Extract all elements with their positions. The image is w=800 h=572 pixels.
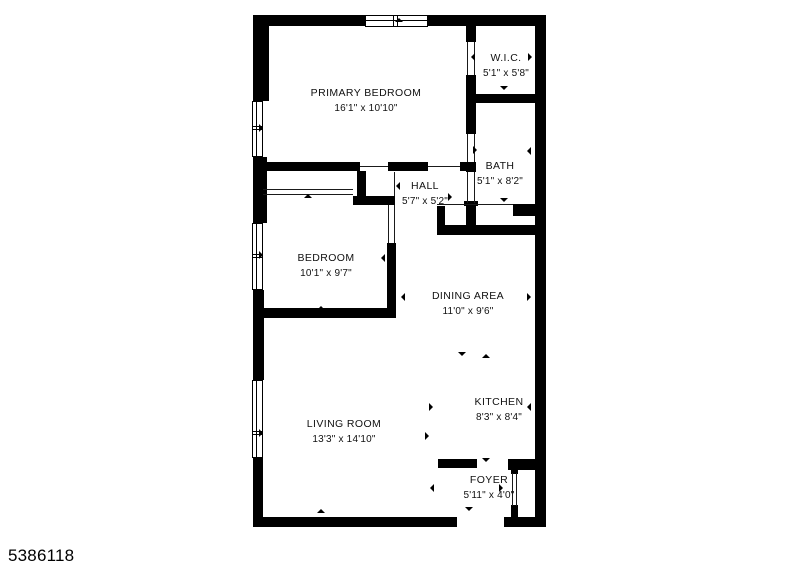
wall — [437, 225, 546, 235]
dimension-tick-marker — [527, 147, 531, 155]
room-label-living-room: LIVING ROOM13'3" x 14'10" — [307, 416, 381, 448]
dimension-tick-marker — [458, 352, 466, 356]
dimension-tick-marker — [396, 182, 400, 190]
room-dimensions: 13'3" x 14'10" — [307, 432, 381, 448]
wall — [388, 162, 428, 171]
door-opening-line — [467, 42, 468, 75]
room-name: DINING AREA — [432, 288, 504, 304]
dimension-tick-marker — [304, 194, 312, 198]
wall — [438, 459, 477, 468]
room-label-kitchen: KITCHEN8'3" x 8'4" — [475, 394, 524, 426]
room-name: KITCHEN — [475, 394, 524, 410]
door-opening-line — [360, 166, 388, 167]
dimension-tick-marker — [401, 293, 405, 301]
room-name: PRIMARY BEDROOM — [311, 85, 422, 101]
dimension-tick-marker — [317, 509, 325, 513]
door-opening-line — [467, 172, 468, 203]
door-opening-line — [394, 172, 395, 196]
dimension-tick-marker — [482, 458, 490, 462]
room-label-bedroom: BEDROOM10'1" x 9'7" — [297, 250, 354, 282]
room-dimensions: 5'11" x 4'0" — [464, 488, 515, 504]
dimension-tick-marker — [430, 484, 434, 492]
dimension-tick-marker — [425, 432, 429, 440]
room-name: BATH — [477, 158, 523, 174]
wall — [353, 196, 395, 205]
door-opening-line — [388, 205, 389, 243]
dimension-tick-marker — [527, 403, 531, 411]
dimension-tick-marker — [465, 507, 473, 511]
door-opening-line — [394, 205, 395, 243]
dimension-tick-marker — [259, 429, 263, 437]
dimension-tick-marker — [317, 306, 325, 310]
room-dimensions: 5'7" x 5'2" — [402, 194, 448, 210]
window-frame-line — [256, 101, 257, 157]
door-opening-line — [474, 172, 475, 203]
window-frame-line — [256, 223, 257, 290]
dimension-tick-marker — [471, 53, 475, 61]
room-dimensions: 5'1" x 5'8" — [483, 66, 529, 82]
floor-plan: PRIMARY BEDROOM16'1" x 10'10"W.I.C.5'1" … — [0, 0, 800, 572]
dimension-tick-marker — [527, 293, 531, 301]
dimension-tick-marker — [381, 254, 385, 262]
wall — [504, 517, 546, 527]
dimension-tick-marker — [473, 146, 477, 154]
door-opening-line — [516, 473, 517, 506]
room-label-wic: W.I.C.5'1" x 5'8" — [483, 50, 529, 82]
wall — [253, 162, 360, 171]
room-dimensions: 10'1" x 9'7" — [297, 266, 354, 282]
wall — [466, 94, 546, 103]
door-opening-line — [437, 204, 513, 205]
room-name: HALL — [402, 178, 448, 194]
wall — [253, 517, 457, 527]
room-name: LIVING ROOM — [307, 416, 381, 432]
wall — [357, 171, 366, 197]
room-label-primary-bedroom: PRIMARY BEDROOM16'1" x 10'10" — [311, 85, 422, 117]
wall — [387, 243, 396, 317]
room-dimensions: 11'0" x 9'6" — [432, 304, 504, 320]
dimension-tick-marker — [500, 86, 508, 90]
wall — [255, 186, 263, 196]
door-opening-line — [467, 134, 468, 162]
dimension-tick-marker — [259, 251, 263, 259]
wall — [466, 162, 476, 172]
dimension-tick-marker — [500, 198, 508, 202]
dimension-tick-marker — [259, 124, 263, 132]
wall — [253, 290, 264, 380]
room-label-bath: BATH5'1" x 8'2" — [477, 158, 523, 190]
room-name: BEDROOM — [297, 250, 354, 266]
door-opening-line — [428, 166, 460, 167]
window-frame-line — [256, 380, 257, 458]
window — [252, 380, 263, 458]
dimension-tick-marker — [395, 18, 403, 22]
photo-id-label: 5386118 — [8, 546, 74, 566]
dimension-tick-marker — [482, 354, 490, 358]
room-name: FOYER — [464, 472, 515, 488]
room-name: W.I.C. — [483, 50, 529, 66]
dimension-tick-marker — [448, 193, 452, 201]
room-dimensions: 8'3" x 8'4" — [475, 410, 524, 426]
wall — [253, 15, 269, 101]
room-dimensions: 5'1" x 8'2" — [477, 174, 523, 190]
room-label-dining-area: DINING AREA11'0" x 9'6" — [432, 288, 504, 320]
wall — [535, 15, 546, 527]
wall — [511, 505, 518, 517]
room-dimensions: 16'1" x 10'10" — [311, 101, 422, 117]
wall — [508, 459, 546, 470]
door-opening-line — [263, 189, 353, 190]
wall — [466, 26, 476, 42]
wall — [466, 103, 476, 134]
window-divider — [393, 15, 394, 27]
room-label-foyer: FOYER5'11" x 4'0" — [464, 472, 515, 504]
dimension-tick-marker — [429, 403, 433, 411]
room-label-hall: HALL5'7" x 5'2" — [402, 178, 448, 210]
wall — [513, 204, 546, 216]
